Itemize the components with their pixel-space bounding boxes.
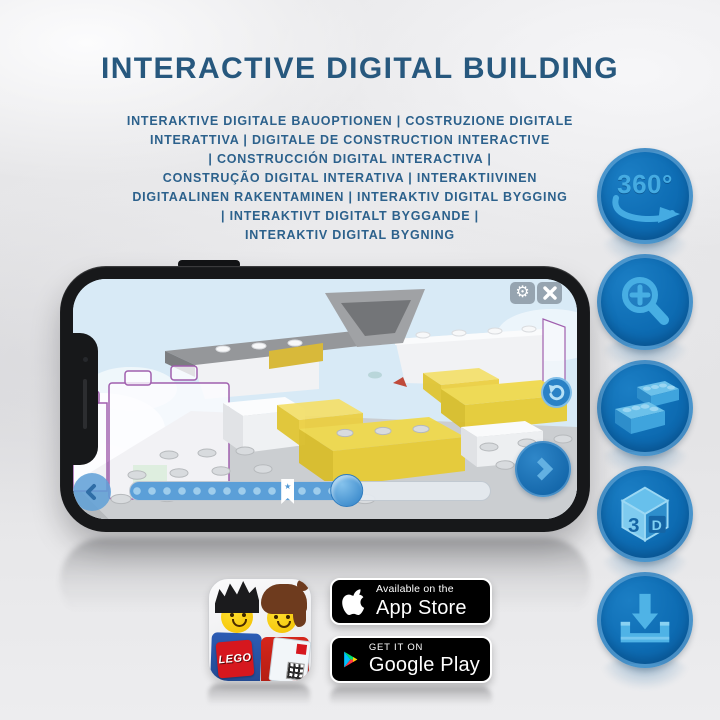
app-store-tagline: Available on the [376, 584, 467, 595]
smartphone: ⚙ ★ [60, 266, 590, 532]
phone-reflection [60, 538, 590, 624]
build-progress-slider[interactable]: ★ [129, 481, 491, 501]
3d-cube-icon: 3 D [613, 482, 677, 546]
apple-icon [342, 587, 367, 617]
card-red-square [296, 644, 307, 655]
zoom-in-icon [616, 273, 674, 331]
subtitle-line: CONSTRUÇÃO DIGITAL INTERATIVA | INTERAKT… [35, 169, 665, 188]
feature-360-view: 360° [597, 148, 693, 244]
badge-reflection [330, 687, 492, 709]
minifig-eye [230, 613, 234, 617]
google-play-badge[interactable]: GET IT ON Google Play [330, 636, 492, 683]
svg-text:D: D [652, 517, 662, 533]
feature-brick-options [597, 360, 693, 456]
app-store-badge[interactable]: Available on the App Store [330, 578, 492, 625]
minifig-eye [242, 613, 246, 617]
app-store-name: App Store [376, 598, 467, 619]
multilingual-subtitle: INTERAKTIVE DIGITALE BAUOPTIONEN | COSTR… [35, 112, 665, 245]
minifig-girl-hair [293, 599, 306, 627]
download-icon [615, 592, 675, 648]
previous-step-button[interactable] [73, 473, 111, 511]
close-button[interactable] [537, 282, 562, 304]
front-camera [83, 357, 88, 362]
chevron-right-icon [526, 452, 560, 486]
chevron-left-icon [83, 483, 101, 501]
slider-bookmark[interactable]: ★ [281, 479, 294, 504]
rotate-model-button[interactable] [541, 377, 572, 408]
gear-icon: ⚙ [515, 282, 529, 304]
subtitle-line: | INTERAKTIVT DIGITALT BYGGANDE | [35, 207, 665, 226]
lego-brick-icon [609, 377, 681, 439]
subtitle-line: DIGITAALINEN RAKENTAMINEN | INTERAKTIV D… [35, 188, 665, 207]
bookmark-star-icon: ★ [284, 482, 291, 491]
lego-logo-text: LEGO [218, 652, 252, 667]
phone-notch [73, 333, 98, 465]
google-play-icon [342, 646, 360, 673]
lego-logo-tile: LEGO [215, 639, 254, 678]
earpiece-speaker [83, 379, 87, 429]
minifig-eye [274, 615, 278, 619]
badge-reflection [208, 684, 310, 710]
svg-text:3: 3 [628, 514, 640, 537]
feature-download [597, 572, 693, 668]
minifig-eye [286, 615, 290, 619]
360-degree-label: 360° [617, 173, 673, 195]
slider-handle[interactable] [330, 474, 363, 507]
subtitle-line: INTERAKTIVE DIGITALE BAUOPTIONEN | COSTR… [35, 112, 665, 131]
poster: INTERACTIVE DIGITAL BUILDING INTERAKTIVE… [0, 0, 720, 720]
app-screen: ⚙ ★ [73, 279, 577, 519]
minifig-girl-hair [297, 579, 309, 591]
google-play-tagline: GET IT ON [369, 643, 480, 653]
subtitle-line: | CONSTRUCCIÓN DIGITAL INTERACTIVA | [35, 150, 665, 169]
page-title: INTERACTIVE DIGITAL BUILDING [0, 52, 720, 86]
google-play-name: Google Play [369, 655, 480, 676]
slider-fill [130, 482, 350, 500]
rotate-arrow-icon [610, 195, 680, 225]
settings-button[interactable]: ⚙ [510, 282, 535, 304]
feature-zoom [597, 254, 693, 350]
minifig-boy-hair [215, 581, 259, 613]
subtitle-line: INTERAKTIV DIGITAL BYGNING [35, 226, 665, 245]
qr-code [286, 662, 305, 681]
next-step-button[interactable] [515, 441, 571, 497]
rotate-icon [547, 383, 566, 402]
lego-app-icon[interactable]: LEGO [208, 578, 312, 682]
instructions-card [268, 637, 311, 682]
close-icon [543, 286, 557, 300]
subtitle-line: INTERATTIVA | DIGITALE DE CONSTRUCTION I… [35, 131, 665, 150]
feature-icon-column: 360° [597, 148, 693, 668]
feature-3d-view: 3 D [597, 466, 693, 562]
